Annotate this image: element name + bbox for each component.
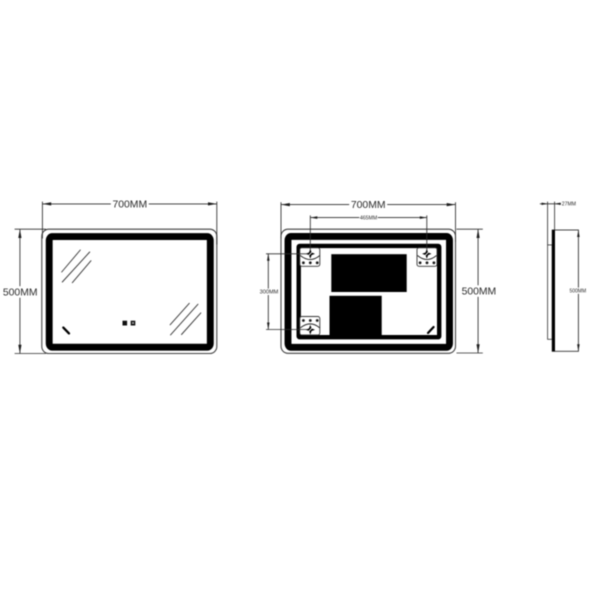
svg-text:300MM: 300MM bbox=[260, 290, 279, 296]
svg-text:700MM: 700MM bbox=[351, 200, 386, 211]
svg-text:500MM: 500MM bbox=[569, 289, 586, 295]
svg-text:27MM: 27MM bbox=[562, 202, 576, 208]
svg-text:500MM: 500MM bbox=[462, 287, 497, 298]
svg-text:500MM: 500MM bbox=[3, 288, 38, 299]
svg-text:700MM: 700MM bbox=[112, 199, 147, 210]
svg-text:465MM: 465MM bbox=[360, 215, 377, 221]
